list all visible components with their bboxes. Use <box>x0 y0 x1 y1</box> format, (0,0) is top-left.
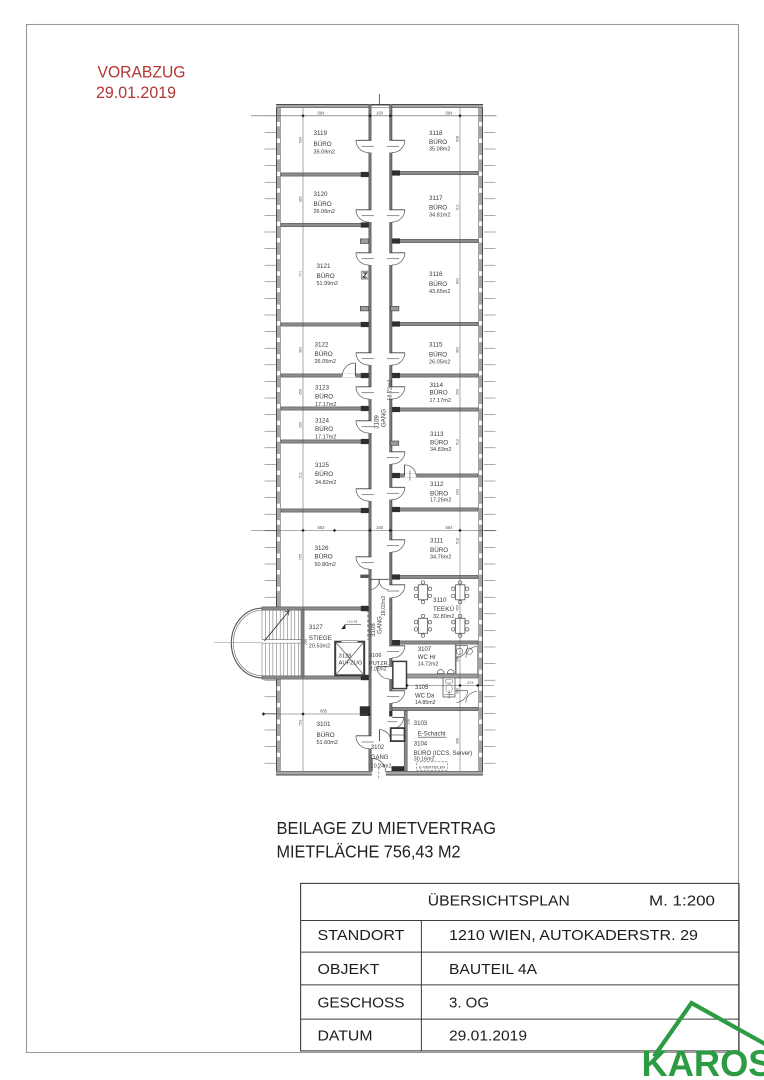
svg-text:3112: 3112 <box>430 481 444 488</box>
svg-text:3121: 3121 <box>317 263 332 270</box>
svg-text:3110: 3110 <box>433 597 447 604</box>
svg-text:17.17m2: 17.17m2 <box>315 402 336 408</box>
svg-text:BAUTEIL 4A: BAUTEIL 4A <box>449 962 537 978</box>
svg-text:369: 369 <box>455 688 459 694</box>
svg-text:26.05m2: 26.05m2 <box>315 359 336 365</box>
svg-text:BÜRO: BÜRO <box>315 350 333 358</box>
svg-text:26.06m2: 26.06m2 <box>314 209 335 215</box>
svg-text:3128: 3128 <box>339 654 352 660</box>
svg-text:29.01.2019: 29.01.2019 <box>96 84 176 102</box>
svg-text:3115: 3115 <box>429 342 443 349</box>
svg-text:M. 1:200: M. 1:200 <box>649 893 715 909</box>
svg-text:3117: 3117 <box>429 195 443 202</box>
svg-text:3105: 3105 <box>415 685 429 691</box>
svg-text:BÜRO: BÜRO <box>317 272 335 280</box>
svg-text:842: 842 <box>455 278 459 284</box>
svg-text:18.02m2: 18.02m2 <box>381 596 387 616</box>
svg-text:3116: 3116 <box>429 271 443 278</box>
svg-text:205: 205 <box>304 639 308 645</box>
svg-text:E-VERTEILER: E-VERTEILER <box>419 764 445 769</box>
svg-text:14.85m2: 14.85m2 <box>415 700 436 706</box>
svg-text:684: 684 <box>446 110 454 115</box>
svg-text:34.83m2: 34.83m2 <box>430 447 451 453</box>
svg-text:ÜBERSICHTSPLAN: ÜBERSICHTSPLAN <box>428 891 570 909</box>
svg-text:17.17m2: 17.17m2 <box>430 398 451 404</box>
svg-text:14.72m2: 14.72m2 <box>418 662 439 668</box>
svg-text:43.65m2: 43.65m2 <box>429 289 450 295</box>
svg-text:TEEKÜ: TEEKÜ <box>433 605 454 613</box>
svg-text:AUFZUG: AUFZUG <box>339 660 363 666</box>
svg-text:35.09m2: 35.09m2 <box>314 150 335 156</box>
svg-text:3124: 3124 <box>315 418 330 425</box>
svg-text:20.53m2: 20.53m2 <box>309 644 330 650</box>
svg-text:WC Hr: WC Hr <box>418 655 436 661</box>
svg-text:GESCHOSS: GESCHOSS <box>318 996 405 1012</box>
svg-text:10.24m2: 10.24m2 <box>371 764 392 770</box>
svg-text:KAROS: KAROS <box>642 1043 764 1080</box>
svg-text:MIETFLÄCHE 756,43 M2: MIETFLÄCHE 756,43 M2 <box>277 842 461 862</box>
svg-text:17.17m2: 17.17m2 <box>315 435 336 441</box>
svg-text:BÜRO: BÜRO <box>317 731 335 739</box>
svg-text:518: 518 <box>455 538 459 544</box>
svg-text:1210 WIEN, AUTOKADERSTR. 29: 1210 WIEN, AUTOKADERSTR. 29 <box>449 928 698 944</box>
svg-text:250: 250 <box>298 389 302 395</box>
svg-text:3118: 3118 <box>429 130 443 137</box>
svg-text:3123: 3123 <box>315 385 330 392</box>
svg-text:BÜRO: BÜRO <box>430 439 448 447</box>
svg-text:685: 685 <box>320 709 328 714</box>
svg-text:DATUM: DATUM <box>318 1029 373 1045</box>
svg-text:874: 874 <box>467 681 473 685</box>
svg-text:362: 362 <box>298 347 302 353</box>
svg-text:BÜRO: BÜRO <box>315 393 333 401</box>
svg-text:459: 459 <box>455 605 459 611</box>
svg-text:51.99m2: 51.99m2 <box>317 281 338 287</box>
svg-text:3107: 3107 <box>418 647 432 653</box>
svg-text:3127: 3127 <box>309 624 324 631</box>
svg-text:58.72m2: 58.72m2 <box>387 380 393 401</box>
svg-text:GANG: GANG <box>371 755 389 761</box>
svg-text:511: 511 <box>455 204 459 210</box>
svg-text:684: 684 <box>446 525 454 530</box>
svg-text:+10.78: +10.78 <box>347 620 357 624</box>
svg-text:WC Da: WC Da <box>415 694 435 700</box>
svg-text:3108: 3108 <box>371 623 377 637</box>
svg-text:BÜRO: BÜRO <box>429 204 447 212</box>
svg-text:BÜRO: BÜRO <box>430 490 448 498</box>
svg-text:3114: 3114 <box>430 382 444 389</box>
svg-text:BÜRO: BÜRO <box>430 546 448 554</box>
svg-text:34.76m2: 34.76m2 <box>430 555 451 561</box>
svg-text:138: 138 <box>406 719 410 725</box>
svg-text:GANG: GANG <box>378 616 384 634</box>
svg-text:BEILAGE ZU MIETVERTRAG: BEILAGE ZU MIETVERTRAG <box>277 818 497 838</box>
svg-text:GANG: GANG <box>380 409 387 427</box>
svg-text:684: 684 <box>318 110 326 115</box>
svg-text:308: 308 <box>455 738 459 744</box>
svg-text:753: 753 <box>298 720 302 726</box>
svg-text:3109: 3109 <box>373 415 380 429</box>
svg-text:160: 160 <box>376 110 384 115</box>
svg-text:50.80m2: 50.80m2 <box>315 562 336 568</box>
svg-text:362: 362 <box>298 196 302 202</box>
svg-text:538: 538 <box>455 136 459 142</box>
svg-text:3111: 3111 <box>430 538 444 545</box>
svg-text:BÜRO: BÜRO <box>429 351 447 359</box>
svg-text:3106: 3106 <box>369 653 381 659</box>
svg-text:3125: 3125 <box>315 462 330 469</box>
svg-text:OBJEKT: OBJEKT <box>318 962 380 978</box>
svg-text:683: 683 <box>318 525 326 530</box>
svg-text:STANDORT: STANDORT <box>318 928 405 944</box>
svg-text:29.01.2019: 29.01.2019 <box>449 1029 527 1045</box>
svg-text:BÜRO: BÜRO <box>430 389 448 397</box>
svg-text:BÜRO: BÜRO <box>314 140 332 148</box>
svg-text:3126: 3126 <box>315 545 330 552</box>
svg-text:362: 362 <box>455 347 459 353</box>
svg-text:BÜRO: BÜRO <box>429 138 447 146</box>
svg-text:534: 534 <box>298 137 302 143</box>
svg-text:26.05m2: 26.05m2 <box>429 360 450 366</box>
svg-text:3122: 3122 <box>315 342 330 349</box>
svg-text:3104: 3104 <box>414 742 428 748</box>
svg-text:BÜRO: BÜRO <box>315 553 333 561</box>
svg-text:160: 160 <box>376 525 384 530</box>
svg-text:3102: 3102 <box>371 745 385 751</box>
svg-text:BÜRO: BÜRO <box>315 470 333 478</box>
svg-text:BÜRO: BÜRO <box>315 425 333 433</box>
svg-text:250: 250 <box>298 422 302 428</box>
svg-text:511: 511 <box>298 472 302 478</box>
svg-text:E-Schacht: E-Schacht <box>418 732 446 738</box>
svg-text:3120: 3120 <box>314 191 329 198</box>
svg-text:34.81m2: 34.81m2 <box>429 213 450 219</box>
svg-text:368: 368 <box>455 656 459 662</box>
svg-text:250: 250 <box>455 389 459 395</box>
svg-text:3119: 3119 <box>314 130 328 137</box>
svg-text:3113: 3113 <box>430 431 444 438</box>
svg-text:STIEGE: STIEGE <box>309 635 332 642</box>
svg-text:VORABZUG: VORABZUG <box>98 64 186 82</box>
svg-text:BÜRO: BÜRO <box>314 200 332 208</box>
svg-text:771: 771 <box>298 271 302 277</box>
svg-text:35.08m2: 35.08m2 <box>429 147 450 153</box>
svg-text:203: 203 <box>455 489 459 495</box>
svg-text:17.25m2: 17.25m2 <box>430 498 451 504</box>
svg-text:3. OG: 3. OG <box>449 996 489 1012</box>
svg-text:51.60m2: 51.60m2 <box>317 740 338 746</box>
svg-text:32.80m2: 32.80m2 <box>433 614 454 620</box>
svg-text:3103: 3103 <box>414 721 428 727</box>
svg-text:512: 512 <box>455 439 459 445</box>
svg-text:34.82m2: 34.82m2 <box>315 480 336 486</box>
svg-text:3101: 3101 <box>317 721 332 728</box>
svg-text:2.02m2: 2.02m2 <box>370 666 387 672</box>
svg-text:755: 755 <box>298 554 302 560</box>
svg-text:BÜRO: BÜRO <box>429 280 447 288</box>
